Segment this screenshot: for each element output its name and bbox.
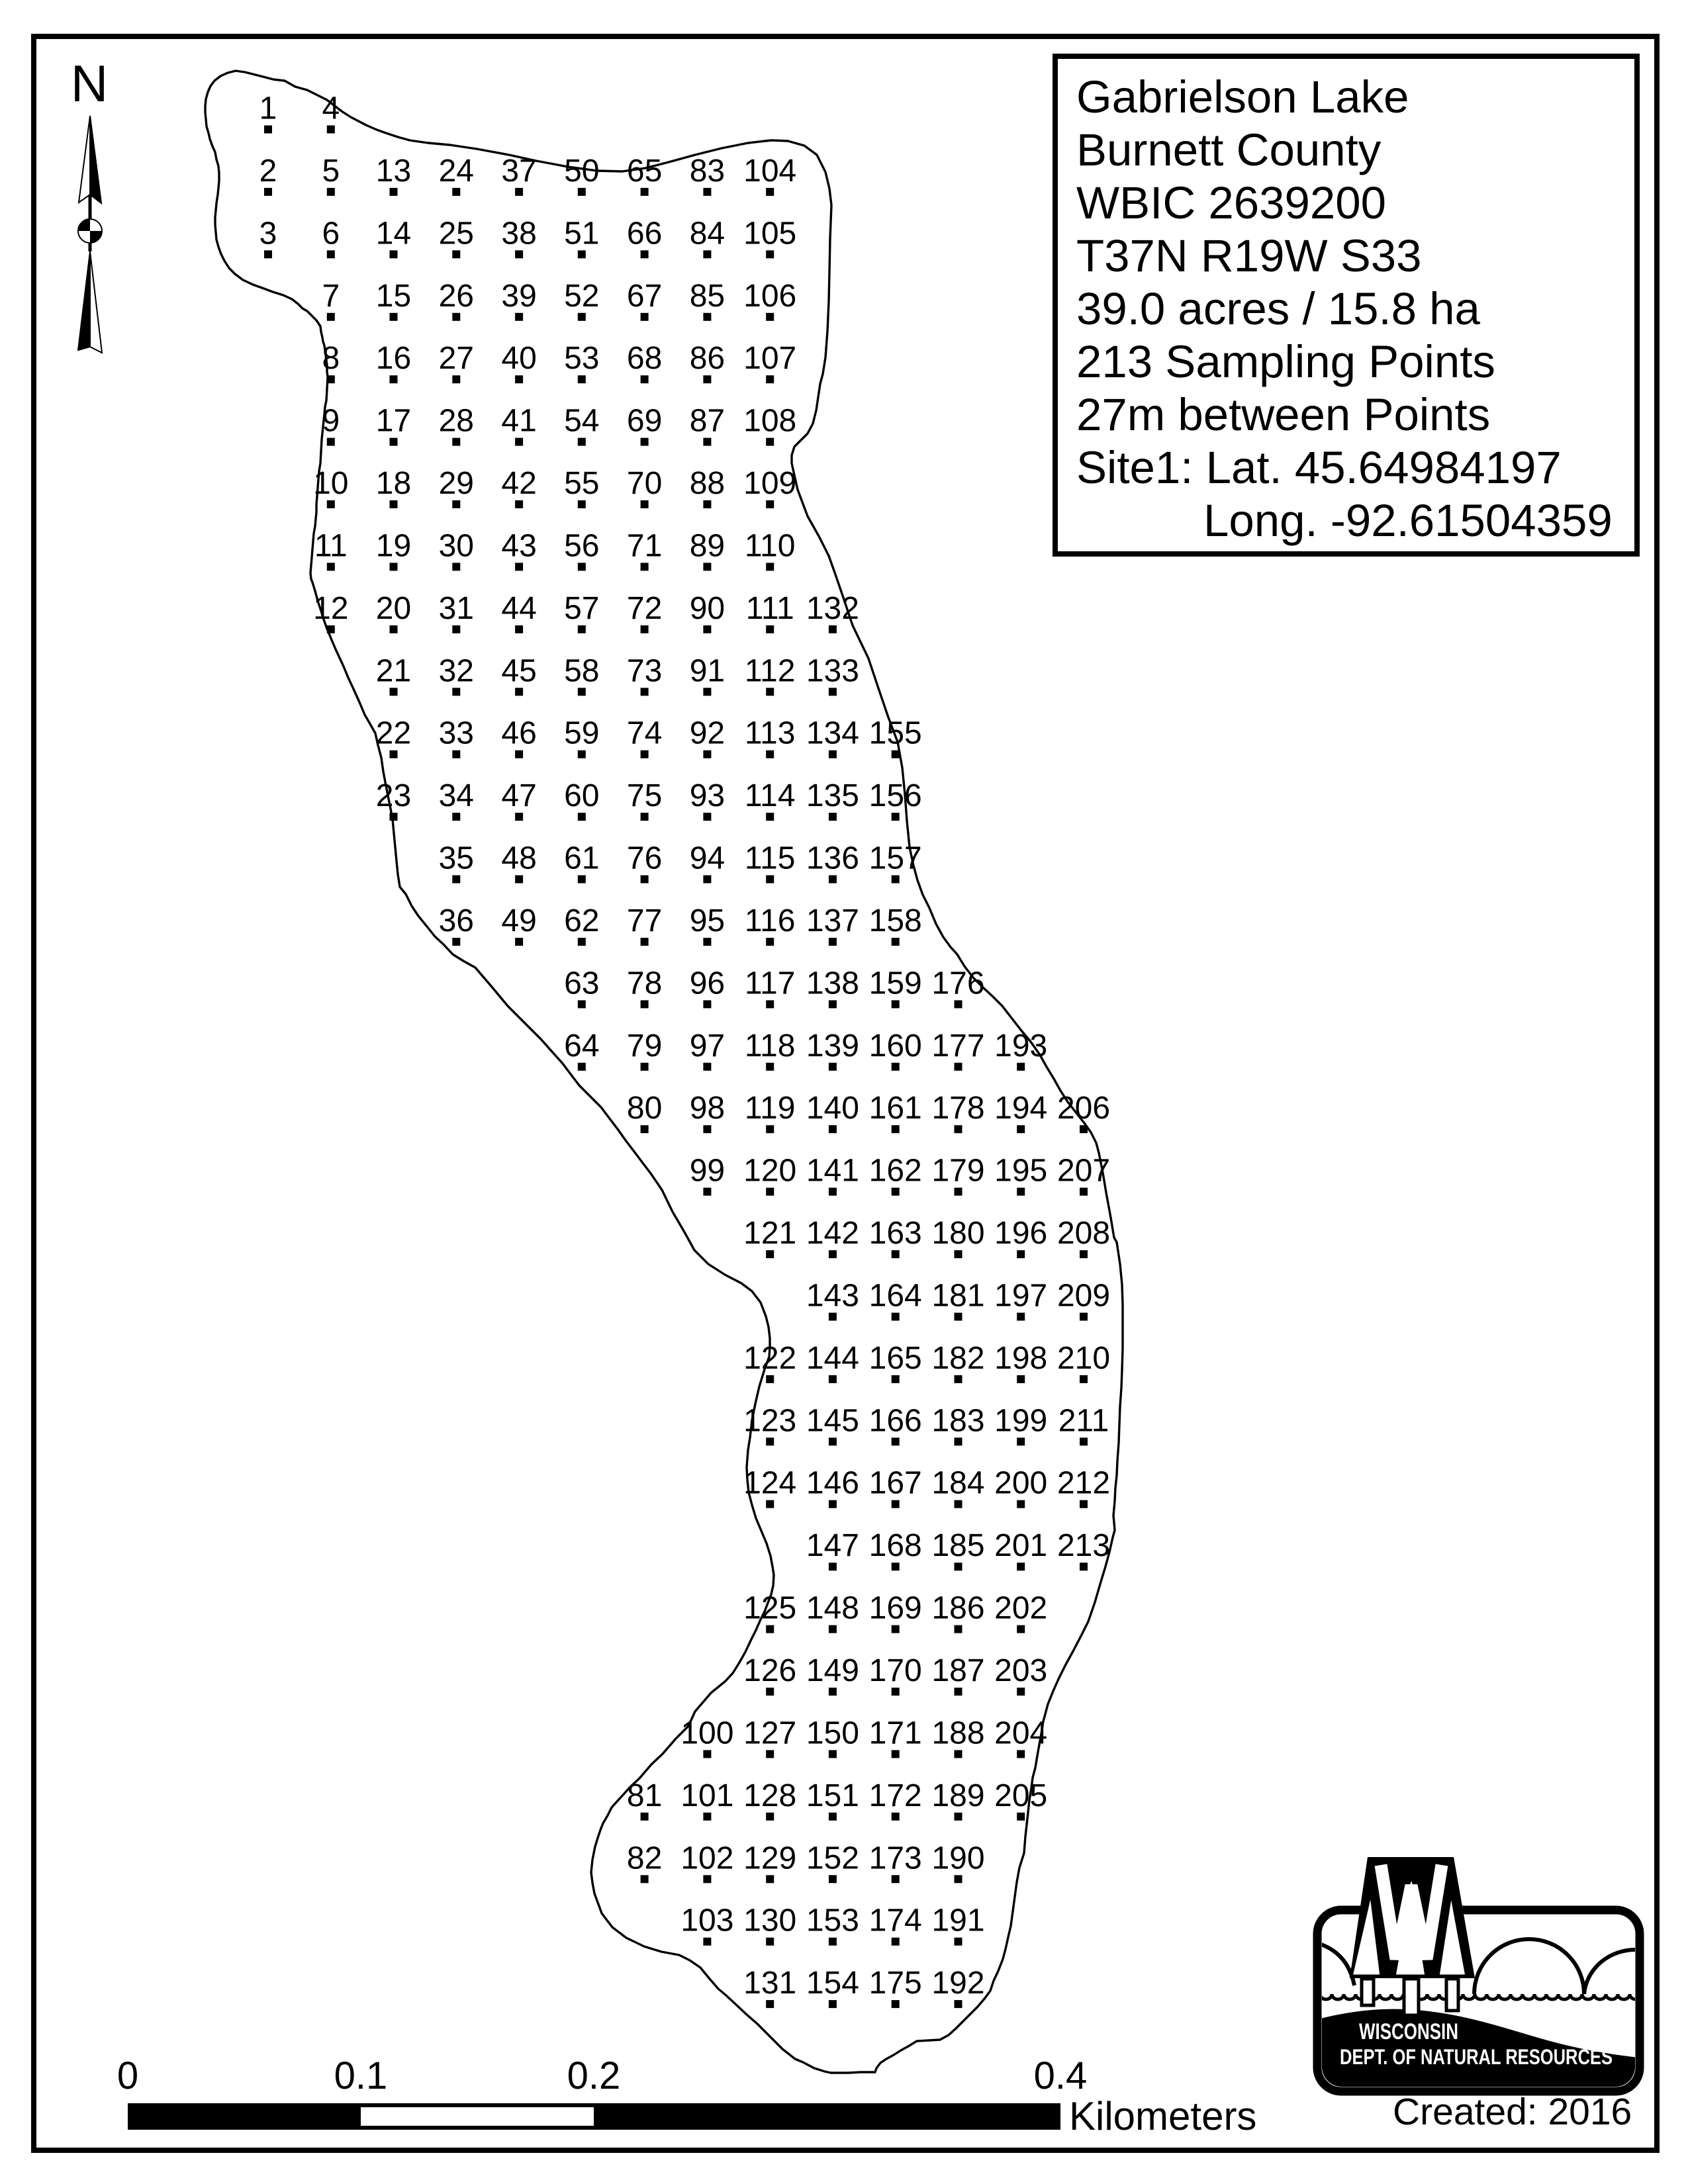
svg-text:25: 25 [439, 216, 474, 251]
svg-text:73: 73 [627, 653, 662, 688]
svg-text:102: 102 [680, 1841, 733, 1876]
svg-text:46: 46 [501, 716, 536, 751]
svg-text:140: 140 [806, 1091, 859, 1126]
svg-text:130: 130 [743, 1903, 796, 1938]
svg-text:42: 42 [501, 466, 536, 501]
svg-text:18: 18 [376, 466, 411, 501]
svg-text:Kilometers: Kilometers [1069, 2094, 1256, 2138]
svg-text:204: 204 [994, 1715, 1047, 1751]
svg-text:166: 166 [869, 1403, 922, 1438]
svg-text:143: 143 [806, 1279, 859, 1314]
svg-text:155: 155 [869, 716, 922, 751]
svg-text:141: 141 [806, 1154, 859, 1189]
svg-text:0.1: 0.1 [334, 2054, 388, 2097]
svg-text:15: 15 [376, 279, 411, 314]
svg-text:105: 105 [743, 216, 796, 251]
svg-text:40: 40 [501, 341, 536, 376]
svg-text:53: 53 [564, 341, 599, 376]
svg-text:65: 65 [627, 154, 662, 189]
svg-text:64: 64 [564, 1028, 599, 1064]
svg-text:99: 99 [690, 1154, 725, 1189]
svg-text:213: 213 [1057, 1528, 1110, 1563]
svg-text:167: 167 [869, 1466, 922, 1501]
svg-text:138: 138 [806, 966, 859, 1001]
svg-text:187: 187 [931, 1653, 984, 1688]
svg-text:177: 177 [931, 1028, 984, 1064]
svg-text:131: 131 [743, 1966, 796, 2001]
svg-text:117: 117 [745, 966, 796, 1001]
svg-text:13: 13 [376, 154, 411, 189]
svg-text:183: 183 [931, 1403, 984, 1438]
svg-text:74: 74 [627, 716, 662, 751]
svg-text:9: 9 [322, 404, 340, 439]
svg-text:63: 63 [564, 966, 599, 1001]
svg-text:212: 212 [1057, 1466, 1110, 1501]
svg-text:170: 170 [869, 1653, 922, 1688]
svg-text:29: 29 [439, 466, 474, 501]
svg-text:207: 207 [1057, 1154, 1110, 1189]
svg-text:124: 124 [743, 1466, 796, 1501]
svg-text:14: 14 [376, 216, 411, 251]
svg-text:174: 174 [869, 1903, 922, 1938]
svg-text:62: 62 [564, 903, 599, 938]
svg-text:107: 107 [743, 341, 796, 376]
svg-text:185: 185 [931, 1528, 984, 1563]
svg-text:213 Sampling Points: 213 Sampling Points [1076, 336, 1495, 387]
svg-text:115: 115 [745, 841, 796, 876]
svg-text:12: 12 [313, 591, 348, 626]
svg-text:150: 150 [806, 1715, 859, 1751]
svg-text:24: 24 [439, 154, 474, 189]
svg-text:190: 190 [931, 1841, 984, 1876]
svg-text:43: 43 [501, 528, 536, 563]
svg-text:56: 56 [564, 528, 599, 563]
svg-text:37: 37 [501, 154, 536, 189]
svg-text:1: 1 [259, 91, 277, 126]
svg-text:203: 203 [994, 1653, 1047, 1688]
svg-text:61: 61 [564, 841, 599, 876]
svg-text:72: 72 [627, 591, 662, 626]
svg-text:Gabrielson Lake: Gabrielson Lake [1076, 71, 1409, 122]
svg-text:161: 161 [869, 1091, 922, 1126]
svg-text:22: 22 [376, 716, 411, 751]
svg-text:133: 133 [806, 653, 859, 688]
svg-text:144: 144 [806, 1341, 859, 1376]
svg-text:152: 152 [806, 1841, 859, 1876]
svg-text:93: 93 [690, 778, 725, 813]
svg-text:79: 79 [627, 1028, 662, 1064]
svg-text:58: 58 [564, 653, 599, 688]
svg-text:119: 119 [745, 1091, 796, 1126]
svg-text:2: 2 [259, 154, 277, 189]
svg-text:5: 5 [322, 154, 340, 189]
svg-text:153: 153 [806, 1903, 859, 1938]
svg-text:44: 44 [501, 591, 536, 626]
svg-text:34: 34 [439, 778, 474, 813]
svg-text:Site1: Lat. 45.64984197: Site1: Lat. 45.64984197 [1076, 442, 1562, 493]
svg-text:137: 137 [806, 903, 859, 938]
svg-text:28: 28 [439, 404, 474, 439]
svg-text:10: 10 [313, 466, 348, 501]
svg-text:182: 182 [931, 1341, 984, 1376]
svg-text:82: 82 [627, 1841, 662, 1876]
svg-text:20: 20 [376, 591, 411, 626]
svg-text:199: 199 [994, 1403, 1047, 1438]
svg-text:142: 142 [806, 1216, 859, 1251]
svg-text:T37N R19W S33: T37N R19W S33 [1076, 230, 1422, 281]
svg-text:68: 68 [627, 341, 662, 376]
svg-text:35: 35 [439, 841, 474, 876]
svg-text:160: 160 [869, 1028, 922, 1064]
svg-text:165: 165 [869, 1341, 922, 1376]
svg-text:17: 17 [376, 404, 411, 439]
svg-text:116: 116 [745, 903, 796, 938]
svg-text:110: 110 [745, 528, 796, 563]
svg-text:106: 106 [743, 279, 796, 314]
svg-text:136: 136 [806, 841, 859, 876]
svg-text:108: 108 [743, 404, 796, 439]
svg-text:188: 188 [931, 1715, 984, 1751]
svg-text:164: 164 [869, 1279, 922, 1314]
svg-text:202: 202 [994, 1591, 1047, 1626]
svg-text:162: 162 [869, 1154, 922, 1189]
svg-text:206: 206 [1057, 1091, 1110, 1126]
svg-text:71: 71 [627, 528, 662, 563]
svg-text:175: 175 [869, 1966, 922, 2001]
svg-text:178: 178 [931, 1091, 984, 1126]
svg-text:101: 101 [680, 1778, 733, 1813]
svg-text:120: 120 [743, 1154, 796, 1189]
svg-text:88: 88 [690, 466, 725, 501]
svg-text:179: 179 [931, 1154, 984, 1189]
svg-text:66: 66 [627, 216, 662, 251]
svg-text:139: 139 [806, 1028, 859, 1064]
svg-text:181: 181 [931, 1279, 984, 1314]
svg-text:90: 90 [690, 591, 725, 626]
svg-text:33: 33 [439, 716, 474, 751]
svg-text:70: 70 [627, 466, 662, 501]
svg-text:172: 172 [869, 1778, 922, 1813]
svg-text:83: 83 [690, 154, 725, 189]
svg-text:158: 158 [869, 903, 922, 938]
svg-text:95: 95 [690, 903, 725, 938]
svg-text:11: 11 [314, 528, 348, 563]
svg-text:3: 3 [259, 216, 277, 251]
svg-text:86: 86 [690, 341, 725, 376]
svg-text:126: 126 [743, 1653, 796, 1688]
svg-text:98: 98 [690, 1091, 725, 1126]
svg-text:N: N [71, 54, 108, 113]
svg-text:85: 85 [690, 279, 725, 314]
svg-text:30: 30 [439, 528, 474, 563]
svg-text:135: 135 [806, 778, 859, 813]
svg-text:WISCONSIN: WISCONSIN [1359, 2019, 1458, 2044]
svg-text:26: 26 [439, 279, 474, 314]
svg-text:6: 6 [322, 216, 340, 251]
svg-text:189: 189 [931, 1778, 984, 1813]
svg-text:122: 122 [743, 1341, 796, 1376]
svg-text:180: 180 [931, 1216, 984, 1251]
svg-text:194: 194 [994, 1091, 1047, 1126]
svg-text:159: 159 [869, 966, 922, 1001]
svg-text:151: 151 [806, 1778, 859, 1813]
svg-text:59: 59 [564, 716, 599, 751]
svg-text:DEPT. OF NATURAL RESOURCES: DEPT. OF NATURAL RESOURCES [1340, 2045, 1613, 2069]
svg-text:8: 8 [322, 341, 340, 376]
svg-text:16: 16 [376, 341, 411, 376]
svg-text:146: 146 [806, 1466, 859, 1501]
svg-text:31: 31 [439, 591, 474, 626]
svg-text:76: 76 [627, 841, 662, 876]
svg-text:52: 52 [564, 279, 599, 314]
svg-text:89: 89 [690, 528, 725, 563]
svg-text:156: 156 [869, 778, 922, 813]
svg-text:23: 23 [376, 778, 411, 813]
svg-text:169: 169 [869, 1591, 922, 1626]
svg-text:205: 205 [994, 1778, 1047, 1813]
svg-text:109: 109 [743, 466, 796, 501]
svg-text:57: 57 [564, 591, 599, 626]
svg-text:39: 39 [501, 279, 536, 314]
svg-text:125: 125 [743, 1591, 796, 1626]
svg-text:196: 196 [994, 1216, 1047, 1251]
svg-text:84: 84 [690, 216, 725, 251]
svg-text:87: 87 [690, 404, 725, 439]
svg-text:168: 168 [869, 1528, 922, 1563]
svg-text:97: 97 [690, 1028, 725, 1064]
svg-text:208: 208 [1057, 1216, 1110, 1251]
svg-text:0.2: 0.2 [567, 2054, 621, 2097]
svg-text:39.0 acres / 15.8 ha: 39.0 acres / 15.8 ha [1076, 283, 1481, 334]
svg-text:114: 114 [745, 778, 796, 813]
svg-text:Long. -92.61504359: Long. -92.61504359 [1203, 495, 1613, 546]
svg-text:104: 104 [743, 154, 796, 189]
svg-text:49: 49 [501, 903, 536, 938]
svg-text:103: 103 [680, 1903, 733, 1938]
svg-text:134: 134 [806, 716, 859, 751]
svg-text:50: 50 [564, 154, 599, 189]
svg-text:WBIC 2639200: WBIC 2639200 [1076, 177, 1386, 228]
svg-text:77: 77 [627, 903, 662, 938]
svg-text:81: 81 [627, 1778, 662, 1813]
svg-text:112: 112 [745, 653, 796, 688]
svg-text:154: 154 [806, 1966, 859, 2001]
svg-text:197: 197 [994, 1279, 1047, 1314]
svg-text:201: 201 [994, 1528, 1047, 1563]
svg-text:92: 92 [690, 716, 725, 751]
svg-text:48: 48 [501, 841, 536, 876]
svg-text:32: 32 [439, 653, 474, 688]
svg-text:186: 186 [931, 1591, 984, 1626]
svg-text:211: 211 [1058, 1403, 1109, 1438]
svg-text:100: 100 [680, 1715, 733, 1751]
svg-text:67: 67 [627, 279, 662, 314]
svg-text:7: 7 [322, 279, 340, 314]
svg-text:128: 128 [743, 1778, 796, 1813]
svg-text:127: 127 [743, 1715, 796, 1751]
svg-text:210: 210 [1057, 1341, 1110, 1376]
svg-text:27m between Points: 27m between Points [1076, 389, 1490, 440]
svg-text:111: 111 [746, 591, 794, 626]
svg-text:0: 0 [117, 2054, 138, 2097]
svg-text:21: 21 [376, 653, 411, 688]
svg-text:45: 45 [501, 653, 536, 688]
svg-text:192: 192 [931, 1966, 984, 2001]
svg-text:157: 157 [869, 841, 922, 876]
svg-text:94: 94 [690, 841, 725, 876]
svg-text:195: 195 [994, 1154, 1047, 1189]
svg-text:27: 27 [439, 341, 474, 376]
svg-text:198: 198 [994, 1341, 1047, 1376]
svg-text:4: 4 [322, 91, 340, 126]
svg-text:132: 132 [806, 591, 859, 626]
svg-text:113: 113 [745, 716, 796, 751]
svg-text:149: 149 [806, 1653, 859, 1688]
svg-text:60: 60 [564, 778, 599, 813]
svg-text:173: 173 [869, 1841, 922, 1876]
svg-text:75: 75 [627, 778, 662, 813]
svg-text:191: 191 [931, 1903, 984, 1938]
svg-text:200: 200 [994, 1466, 1047, 1501]
svg-text:51: 51 [564, 216, 599, 251]
svg-text:Created: 2016: Created: 2016 [1393, 2091, 1632, 2133]
svg-text:171: 171 [869, 1715, 922, 1751]
svg-text:96: 96 [690, 966, 725, 1001]
svg-text:118: 118 [745, 1028, 796, 1064]
svg-text:55: 55 [564, 466, 599, 501]
svg-text:163: 163 [869, 1216, 922, 1251]
svg-text:38: 38 [501, 216, 536, 251]
svg-text:36: 36 [439, 903, 474, 938]
svg-text:193: 193 [994, 1028, 1047, 1064]
svg-text:54: 54 [564, 404, 599, 439]
svg-text:78: 78 [627, 966, 662, 1001]
svg-text:148: 148 [806, 1591, 859, 1626]
svg-text:145: 145 [806, 1403, 859, 1438]
svg-text:80: 80 [627, 1091, 662, 1126]
svg-text:147: 147 [806, 1528, 859, 1563]
svg-text:121: 121 [743, 1216, 796, 1251]
svg-text:47: 47 [501, 778, 536, 813]
svg-text:0.4: 0.4 [1034, 2054, 1088, 2097]
svg-text:209: 209 [1057, 1279, 1110, 1314]
svg-text:19: 19 [376, 528, 411, 563]
svg-text:69: 69 [627, 404, 662, 439]
svg-text:129: 129 [743, 1841, 796, 1876]
svg-text:Burnett County: Burnett County [1076, 124, 1382, 175]
svg-text:176: 176 [931, 966, 984, 1001]
svg-text:123: 123 [743, 1403, 796, 1438]
svg-text:91: 91 [690, 653, 725, 688]
svg-text:184: 184 [931, 1466, 984, 1501]
svg-text:41: 41 [501, 404, 536, 439]
